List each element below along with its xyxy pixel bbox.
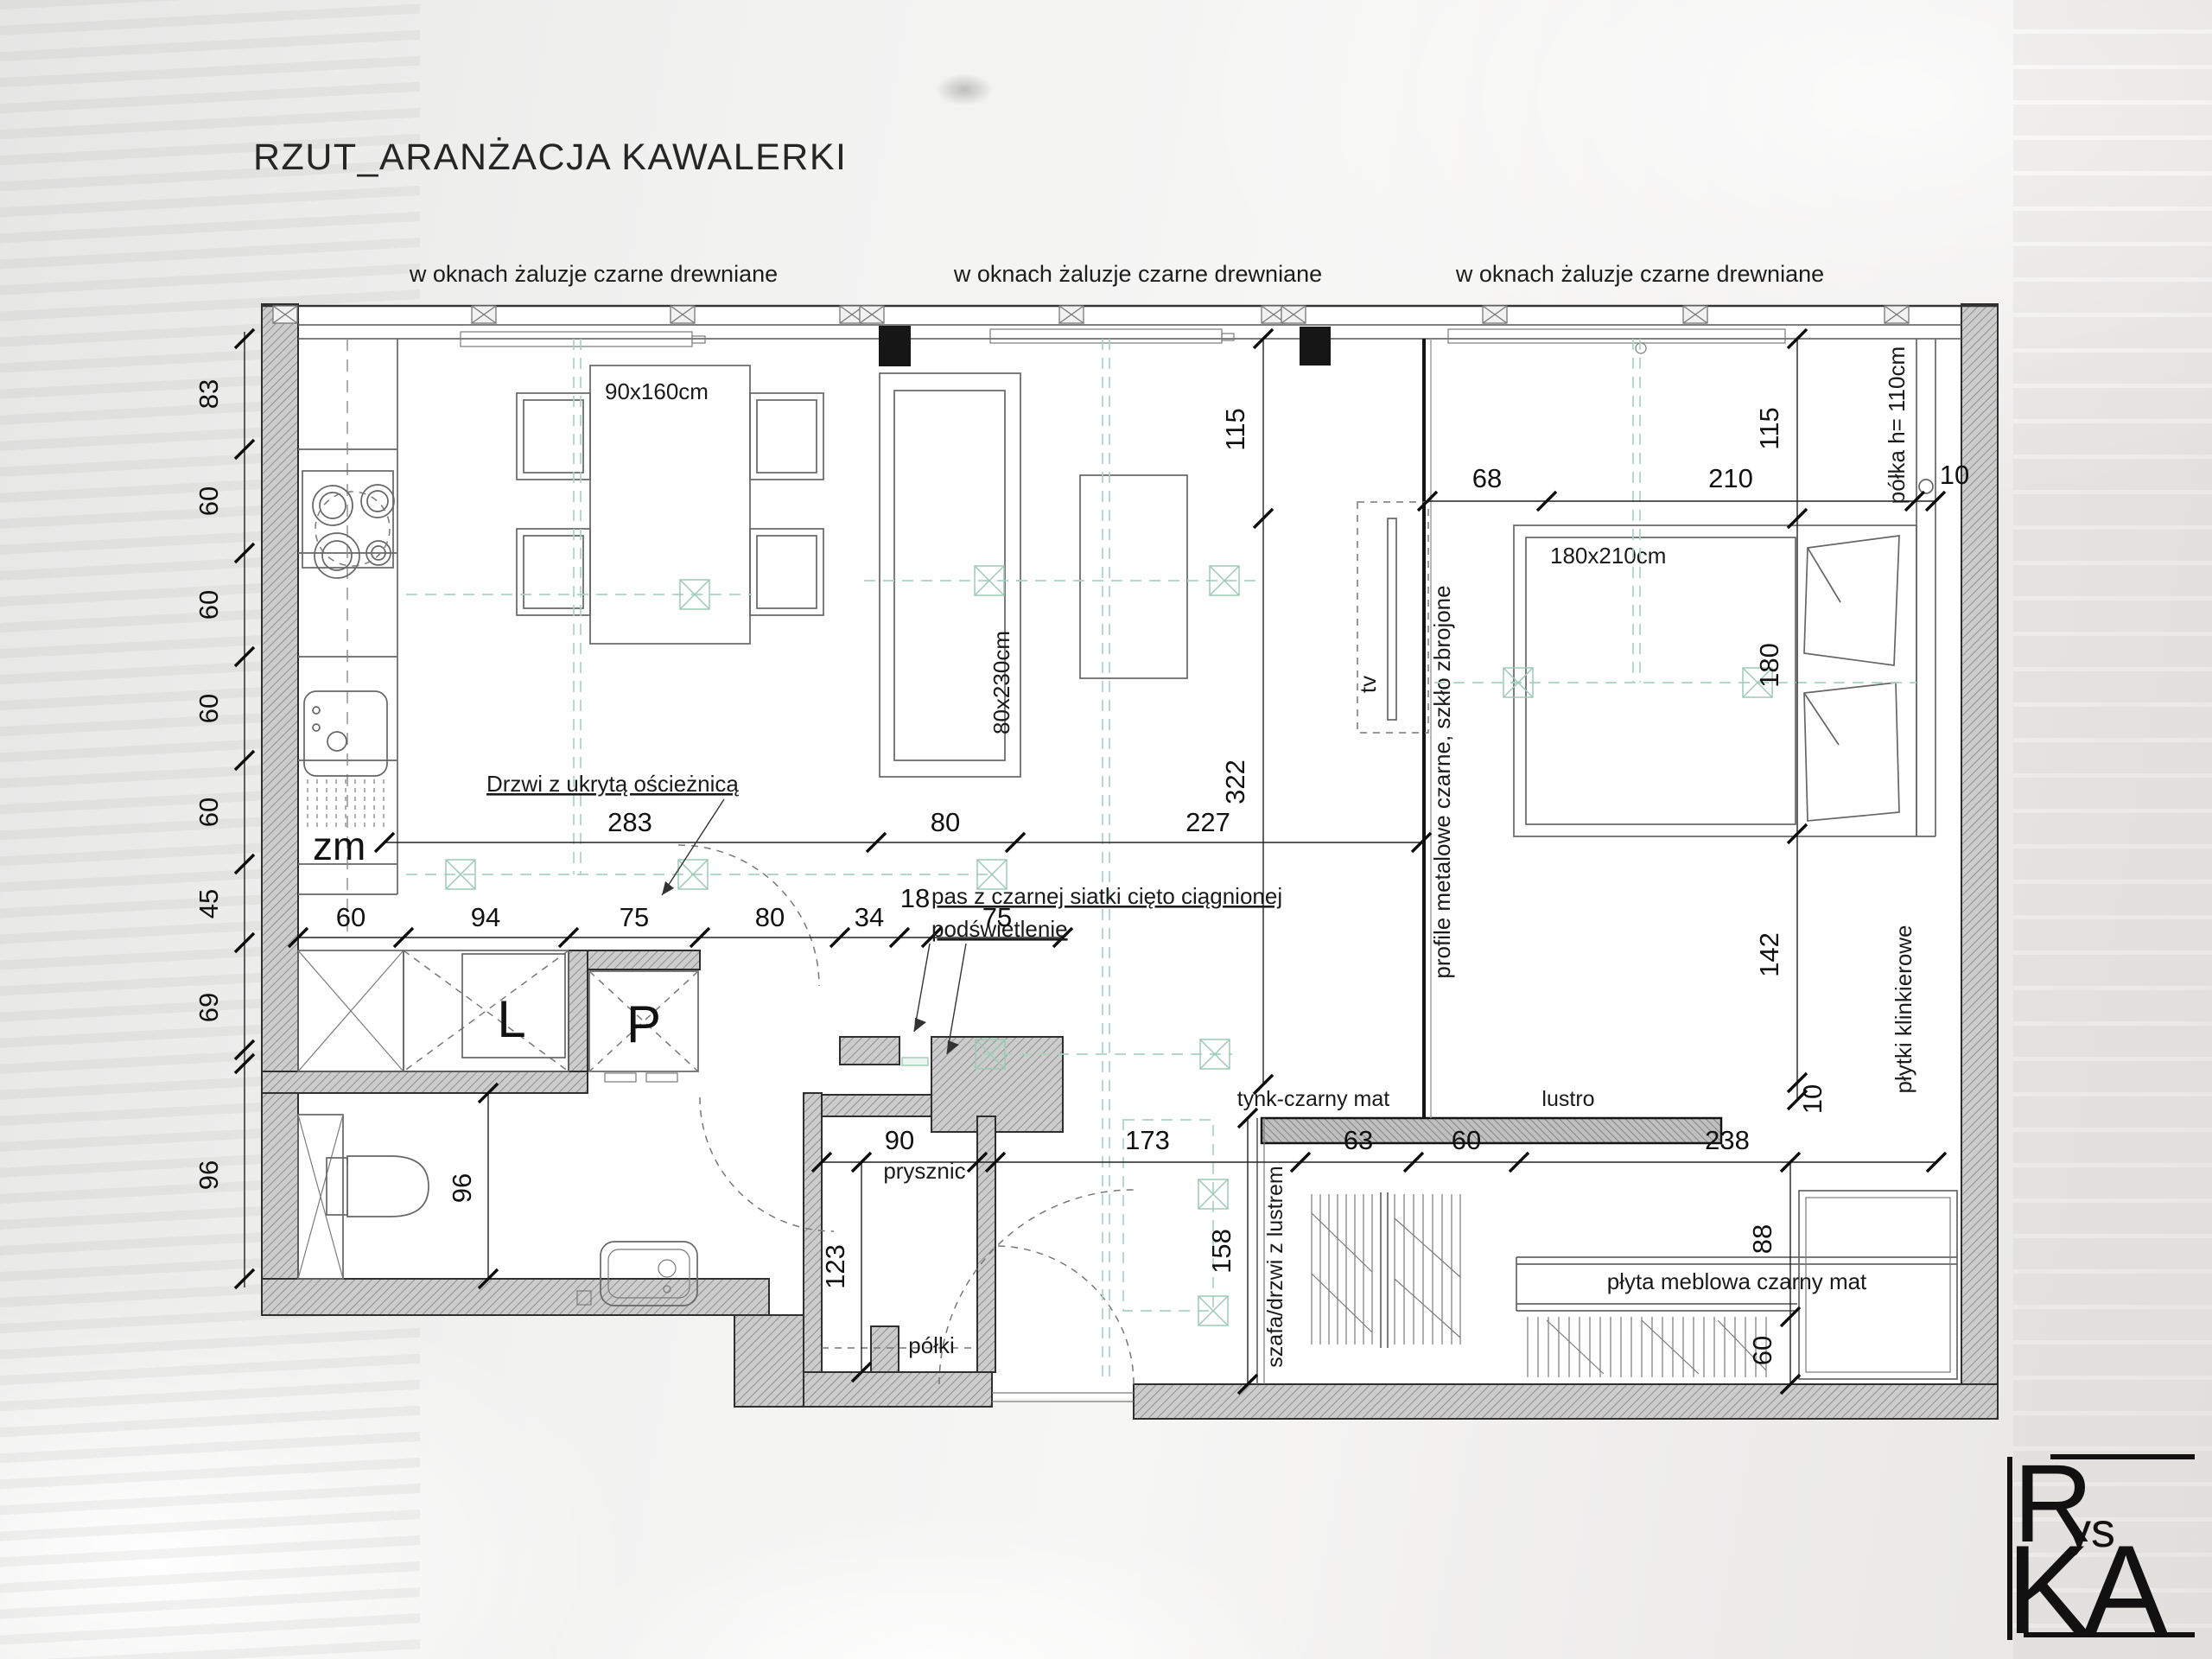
structural-column-2 (1300, 327, 1331, 365)
window-note-2: w oknach żaluzje czarne drewniane (953, 261, 1322, 287)
dim-10-shelf: 10 (1940, 460, 1969, 490)
dim-60d: 60 (194, 798, 224, 827)
dim-227: 227 (1185, 807, 1230, 837)
dim-283: 283 (607, 807, 652, 837)
dim-94: 94 (471, 902, 500, 932)
mirror-panel (1262, 1118, 1721, 1143)
sofa-size-label: 80x230cm (988, 631, 1014, 734)
plaster-note: tynk-czarny mat (1237, 1087, 1389, 1111)
dim-60e: 60 (336, 902, 365, 932)
closet-p-label: P (626, 995, 661, 1053)
logo-ryska: R ys KA (2006, 1442, 2195, 1659)
dim-60c: 60 (194, 694, 224, 723)
dim-34: 34 (855, 902, 884, 932)
wardrobe-note: szafa/drzwi z lustrem (1263, 1166, 1287, 1367)
page-title: RZUT_ARANŻACJA KAWALERKI (253, 137, 848, 178)
dim-45: 45 (194, 889, 224, 918)
dim-123: 123 (820, 1244, 850, 1289)
dim-96-bath: 96 (447, 1173, 477, 1203)
dim-90: 90 (885, 1125, 914, 1155)
dim-96-left: 96 (194, 1160, 224, 1190)
dim-60a: 60 (194, 486, 224, 516)
dim-68: 68 (1472, 463, 1502, 493)
dim-158: 158 (1206, 1229, 1236, 1274)
shelf-height-note: półka h= 110cm (1884, 346, 1910, 504)
dim-60f: 60 (1452, 1125, 1481, 1155)
dim-69: 69 (194, 993, 224, 1022)
bed-size-label: 180x210cm (1550, 543, 1666, 569)
dim-80-door: 80 (931, 807, 960, 837)
dim-142: 142 (1754, 932, 1784, 977)
shelves-label: półki (908, 1332, 954, 1358)
table-size-label: 90x160cm (605, 378, 709, 404)
window-note-3: w oknach żaluzje czarne drewniane (1455, 261, 1824, 287)
profiles-note: profile metalowe czarne, szkło zbrojone (1429, 585, 1455, 978)
dim-60b: 60 (194, 590, 224, 620)
screenshot-canvas: RZUT_ARANŻACJA KAWALERKI w oknach żaluzj… (0, 0, 2212, 1659)
mirror-note: lustro (1541, 1087, 1594, 1111)
dim-210: 210 (1708, 463, 1753, 493)
dim-63: 63 (1344, 1125, 1373, 1155)
dim-10-wall: 10 (1797, 1084, 1827, 1114)
dim-60-desk: 60 (1747, 1336, 1777, 1365)
dim-88: 88 (1747, 1224, 1777, 1254)
mesh-note-1: pas z czarnej siatki cięto ciągnionej (931, 883, 1282, 909)
structural-column (879, 326, 911, 366)
dim-83: 83 (194, 379, 224, 409)
board-note: płyta meblowa czarny mat (1607, 1268, 1867, 1294)
dim-322: 322 (1220, 760, 1250, 804)
dim-80b: 80 (755, 902, 785, 932)
dim-115-right: 115 (1754, 407, 1784, 449)
dim-180: 180 (1754, 643, 1784, 688)
window-note-1: w oknach żaluzje czarne drewniane (409, 261, 778, 287)
dim-115-left: 115 (1220, 408, 1250, 450)
mesh-light-strip (902, 1058, 928, 1065)
mesh-note-2: podświetlenie (931, 916, 1068, 942)
hidden-door-note: Drzwi z ukrytą ościeżnicą (486, 771, 739, 797)
dim-173: 173 (1125, 1125, 1170, 1155)
tv-label: tv (1355, 676, 1381, 693)
dishwasher-label: zm (313, 823, 365, 868)
closet-l-label: L (497, 990, 525, 1048)
floor-plan-drawing: RZUT_ARANŻACJA KAWALERKI w oknach żaluzj… (0, 0, 2212, 1659)
dim-238: 238 (1705, 1125, 1750, 1155)
logo-ka: KA (2006, 1519, 2168, 1659)
dim-18: 18 (900, 883, 930, 913)
clinker-note: płytki klinkierowe (1891, 925, 1916, 1093)
dim-75a: 75 (620, 902, 649, 932)
